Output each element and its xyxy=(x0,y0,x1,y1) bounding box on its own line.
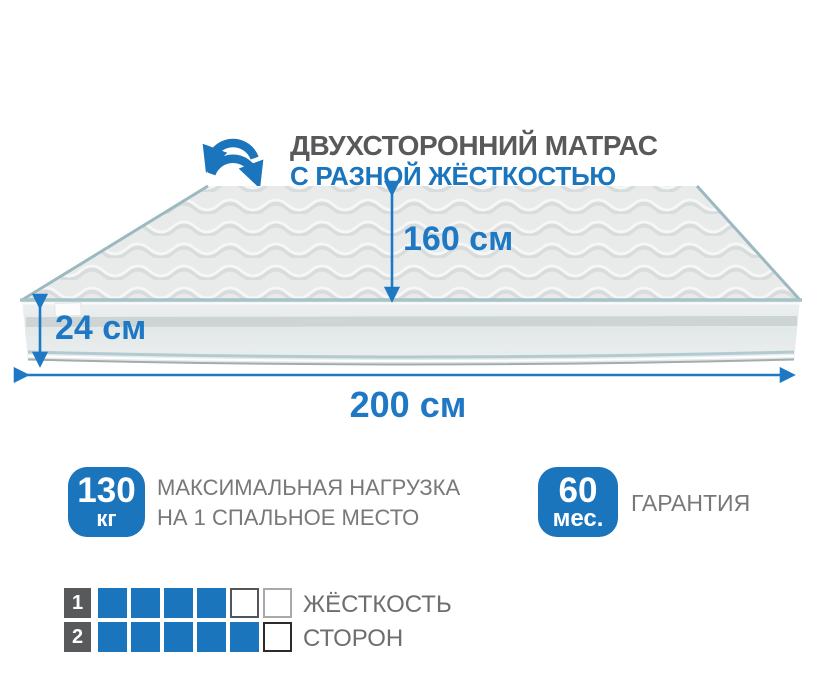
mattress-scene: 160 см 24 см 200 см xyxy=(0,170,816,440)
firmness-cell-filled xyxy=(197,622,226,652)
max-load-caption-line2: НА 1 СПАЛЬНОЕ МЕСТО xyxy=(157,503,460,533)
firmness-cell-empty xyxy=(230,588,259,618)
width-dimension-label: 160 см xyxy=(403,220,513,259)
firmness-cell-empty xyxy=(263,622,292,652)
firmness-rows: 12 xyxy=(64,588,296,652)
firmness-cell-filled xyxy=(131,622,160,652)
firmness-cell-filled xyxy=(197,588,226,618)
firmness-label: ЖЁСТКОСТЬ СТОРОН xyxy=(303,588,452,656)
firmness-label-line2: СТОРОН xyxy=(303,622,452,656)
max-load-value: 130 xyxy=(77,475,135,507)
firmness-cell-filled xyxy=(98,588,127,618)
firmness-row-side-1: 1 xyxy=(64,588,296,618)
warranty-value: 60 xyxy=(559,475,598,507)
warranty-badge: 60 мес. xyxy=(538,467,618,537)
firmness-cell-empty xyxy=(263,588,292,618)
side-number-square: 2 xyxy=(64,622,91,652)
warranty-caption: ГАРАНТИЯ xyxy=(631,488,750,518)
warranty-unit: мес. xyxy=(553,507,604,530)
side-number-square: 1 xyxy=(64,588,91,618)
max-load-badge: 130 кг xyxy=(68,467,145,537)
firmness-cell-filled xyxy=(164,622,193,652)
max-load-unit: кг xyxy=(96,507,116,530)
firmness-scale: 12 ЖЁСТКОСТЬ СТОРОН xyxy=(64,588,296,656)
firmness-label-line1: ЖЁСТКОСТЬ xyxy=(303,588,452,622)
firmness-cell-filled xyxy=(230,622,259,652)
firmness-cell-filled xyxy=(131,588,160,618)
firmness-cell-filled xyxy=(164,588,193,618)
header: ДВУХСТОРОННИЙ МАТРАС С РАЗНОЙ ЖЁСТКОСТЬЮ xyxy=(0,60,816,150)
max-load-caption-line1: МАКСИМАЛЬНАЯ НАГРУЗКА xyxy=(157,473,460,503)
max-load-caption: МАКСИМАЛЬНАЯ НАГРУЗКА НА 1 СПАЛЬНОЕ МЕСТ… xyxy=(157,473,460,533)
height-dimension-label: 24 см xyxy=(55,309,146,348)
length-dimension-label: 200 см xyxy=(0,384,816,426)
firmness-row-side-2: 2 xyxy=(64,622,296,652)
mattress-infographic: ДВУХСТОРОННИЙ МАТРАС С РАЗНОЙ ЖЁСТКОСТЬЮ xyxy=(0,0,816,700)
firmness-cell-filled xyxy=(98,622,127,652)
page-title: ДВУХСТОРОННИЙ МАТРАС xyxy=(290,130,658,162)
